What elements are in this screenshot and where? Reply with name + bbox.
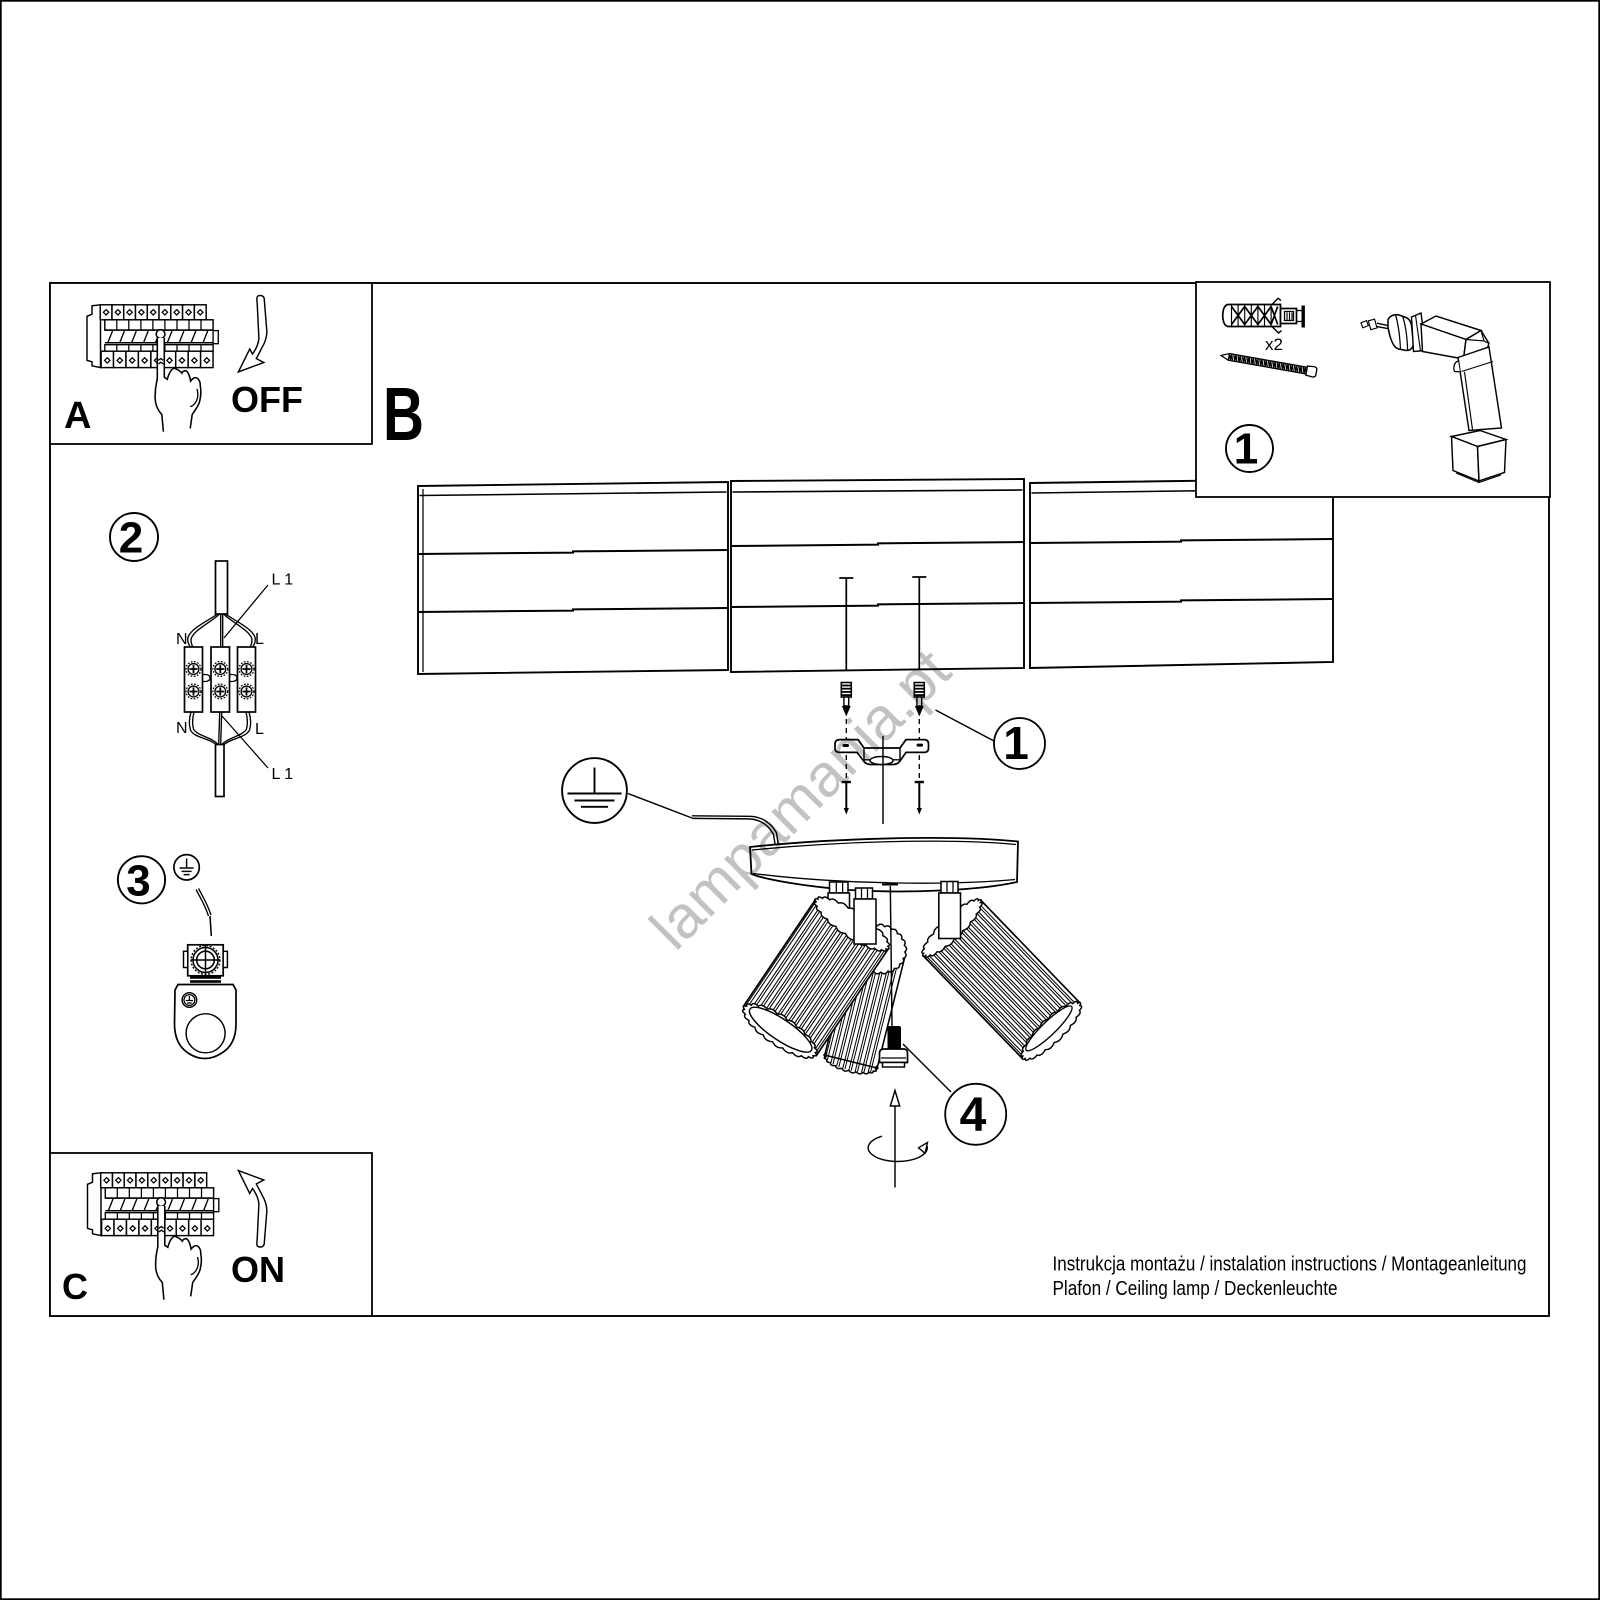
svg-text:2: 2 — [119, 514, 143, 563]
svg-text:Plafon / Ceiling lamp / Decken: Plafon / Ceiling lamp / Deckenleuchte — [1053, 1277, 1338, 1300]
svg-text:OFF: OFF — [231, 379, 303, 420]
svg-text:x2: x2 — [1265, 335, 1283, 354]
svg-text:ON: ON — [231, 1249, 285, 1290]
svg-text:L 1: L 1 — [272, 766, 294, 783]
svg-text:1: 1 — [1003, 717, 1029, 769]
svg-text:L: L — [255, 631, 264, 648]
svg-text:L 1: L 1 — [272, 572, 294, 589]
svg-text:B: B — [383, 372, 424, 456]
svg-text:Instrukcja montażu / instalati: Instrukcja montażu / instalation instruc… — [1053, 1253, 1527, 1276]
svg-text:L: L — [255, 721, 264, 738]
svg-text:A: A — [64, 395, 91, 437]
svg-text:1: 1 — [1234, 425, 1258, 474]
svg-text:N: N — [176, 631, 188, 648]
svg-text:N: N — [176, 720, 188, 737]
svg-text:C: C — [62, 1266, 88, 1307]
svg-text:4: 4 — [960, 1089, 987, 1142]
svg-text:3: 3 — [126, 857, 150, 906]
